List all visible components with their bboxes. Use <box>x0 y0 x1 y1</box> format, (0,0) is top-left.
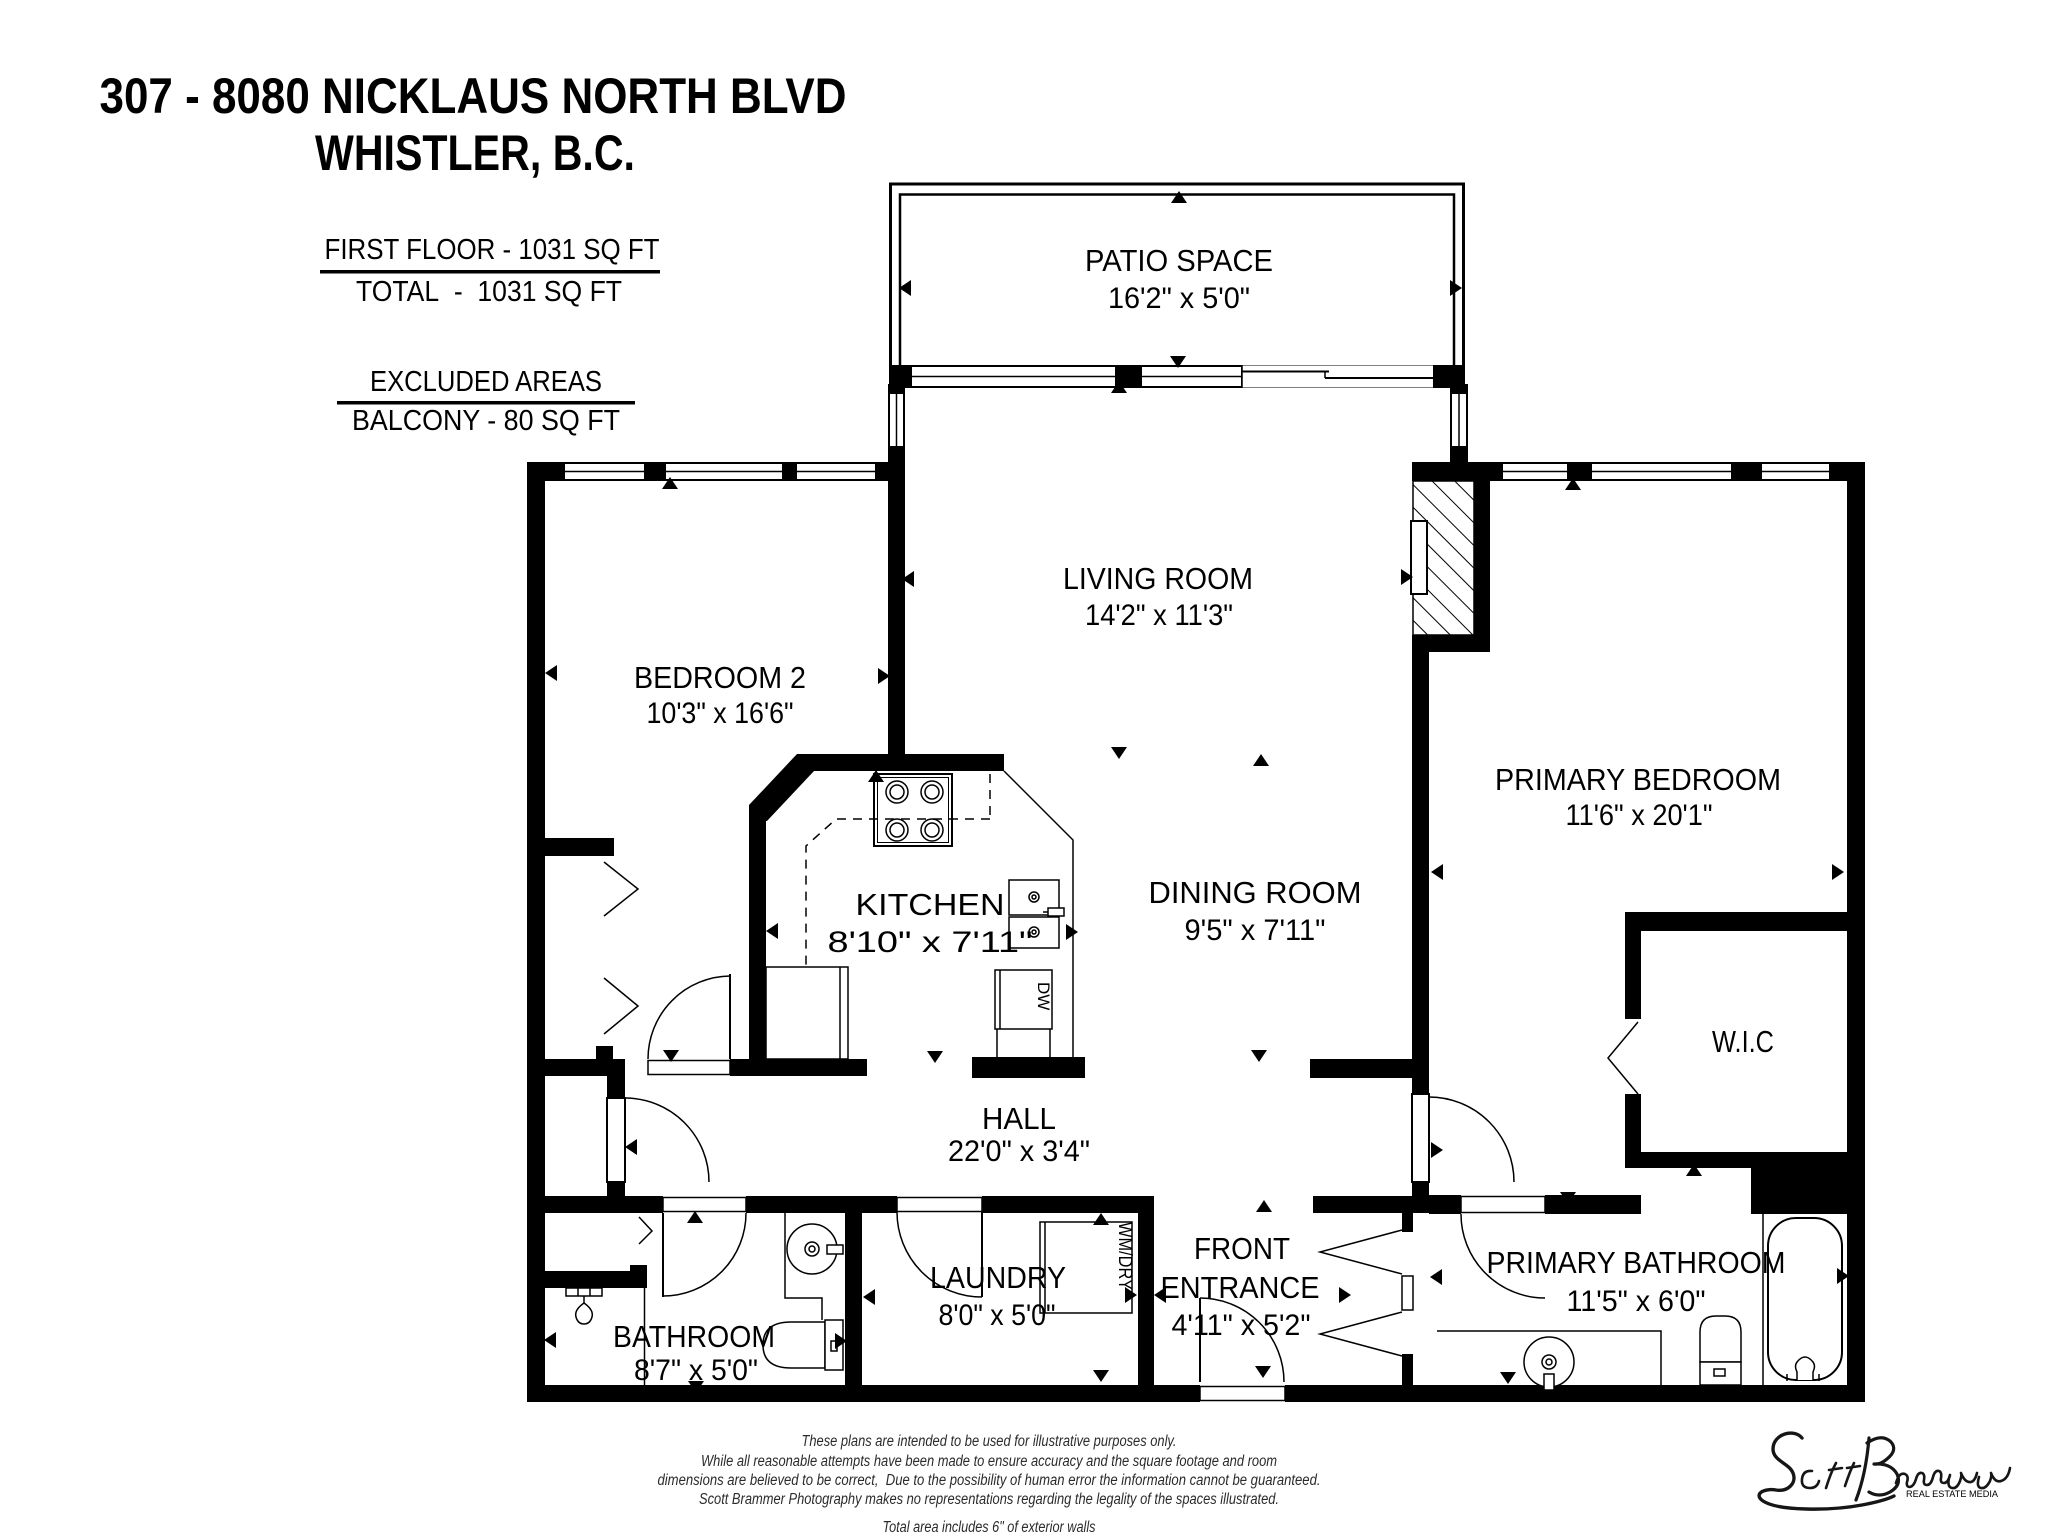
svg-text:Total area includes 6" of exte: Total area includes 6" of exterior walls <box>883 1519 1096 1536</box>
svg-text:DINING ROOM: DINING ROOM <box>1149 875 1362 910</box>
svg-text:Scott Brammer Photography make: Scott Brammer Photography makes no repre… <box>699 1491 1279 1508</box>
svg-text:11'6" x 20'1": 11'6" x 20'1" <box>1566 799 1713 832</box>
svg-text:22'0" x 3'4": 22'0" x 3'4" <box>948 1135 1090 1168</box>
svg-text:PRIMARY BEDROOM: PRIMARY BEDROOM <box>1495 762 1781 797</box>
svg-text:These plans are intended to be: These plans are intended to be used for … <box>802 1433 1177 1450</box>
svg-text:11'5" x 6'0": 11'5" x 6'0" <box>1567 1285 1706 1318</box>
svg-text:dimensions are believed to be: dimensions are believed to be correct, D… <box>658 1472 1321 1489</box>
svg-text:W.I.C: W.I.C <box>1712 1024 1774 1059</box>
svg-text:8'7" x 5'0": 8'7" x 5'0" <box>634 1354 758 1387</box>
svg-text:While all reasonable attempts: While all reasonable attempts have been … <box>701 1453 1277 1470</box>
svg-text:8'10" x 7'11": 8'10" x 7'11" <box>828 926 1033 959</box>
svg-text:REAL ESTATE MEDIA: REAL ESTATE MEDIA <box>1906 1489 1999 1500</box>
svg-text:LIVING ROOM: LIVING ROOM <box>1063 561 1253 596</box>
svg-text:ENTRANCE: ENTRANCE <box>1161 1270 1320 1305</box>
svg-text:EXCLUDED AREAS: EXCLUDED AREAS <box>370 366 602 398</box>
svg-text:BALCONY - 80 SQ FT: BALCONY - 80 SQ FT <box>352 405 620 437</box>
svg-text:HALL: HALL <box>982 1101 1056 1136</box>
svg-text:WHISTLER, B.C.: WHISTLER, B.C. <box>315 125 635 181</box>
svg-text:14'2" x 11'3": 14'2" x 11'3" <box>1085 599 1233 632</box>
svg-text:8'0" x 5'0": 8'0" x 5'0" <box>939 1299 1056 1332</box>
svg-text:10'3" x 16'6": 10'3" x 16'6" <box>647 697 794 730</box>
svg-text:BEDROOM 2: BEDROOM 2 <box>634 660 806 695</box>
svg-text:4'11" x 5'2": 4'11" x 5'2" <box>1172 1309 1311 1342</box>
svg-text:PATIO SPACE: PATIO SPACE <box>1085 243 1273 278</box>
svg-text:DW: DW <box>1034 982 1053 1010</box>
svg-text:PRIMARY BATHROOM: PRIMARY BATHROOM <box>1487 1245 1786 1280</box>
svg-text:FRONT: FRONT <box>1194 1231 1290 1266</box>
svg-text:BATHROOM: BATHROOM <box>613 1319 775 1354</box>
svg-text:307 - 8080 NICKLAUS NORTH BLVD: 307 - 8080 NICKLAUS NORTH BLVD <box>100 68 847 124</box>
svg-text:TOTAL - 1031 SQ FT: TOTAL - 1031 SQ FT <box>356 276 622 308</box>
svg-text:FIRST FLOOR - 1031 SQ FT: FIRST FLOOR - 1031 SQ FT <box>325 234 660 266</box>
svg-text:9'5" x 7'11": 9'5" x 7'11" <box>1185 914 1326 947</box>
svg-text:16'2" x 5'0": 16'2" x 5'0" <box>1108 282 1250 315</box>
svg-text:LAUNDRY: LAUNDRY <box>930 1260 1066 1295</box>
svg-text:WM/DRY: WM/DRY <box>1114 1222 1135 1290</box>
svg-text:KITCHEN: KITCHEN <box>856 887 1005 922</box>
